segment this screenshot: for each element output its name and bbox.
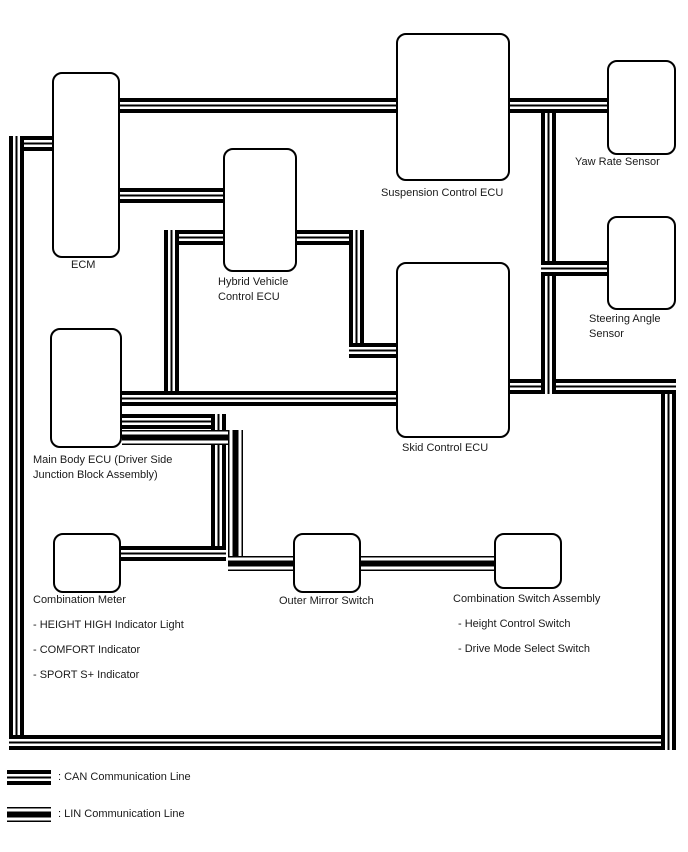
can-line-hybrid-down-right	[349, 230, 364, 358]
node-mainbody-label-line2: Junction Block Assembly)	[33, 468, 172, 483]
legend-lin-label: : LIN Communication Line	[58, 807, 185, 822]
node-hybrid-vehicle-control-ecu	[223, 148, 297, 272]
node-skid-label: Skid Control ECU	[402, 441, 488, 456]
meter-indicator-item: - SPORT S+ Indicator	[33, 668, 139, 683]
node-steering-label-line1: Steering Angle	[589, 312, 661, 327]
can-line-ecm-hybrid	[120, 188, 223, 203]
node-combswitch-label: Combination Switch Assembly	[453, 592, 600, 607]
lin-line-to-mirror-switch	[228, 556, 293, 571]
node-steering-angle-sensor	[607, 216, 676, 310]
node-skid-control-ecu	[396, 262, 510, 438]
can-line-ecm-suspension-yaw	[120, 98, 607, 113]
legend-can-label: : CAN Communication Line	[58, 770, 191, 785]
can-line-loop-left	[9, 136, 24, 750]
node-combination-switch-assembly	[494, 533, 562, 589]
can-line-to-meter	[121, 546, 226, 561]
meter-indicator-item: - COMFORT Indicator	[33, 643, 140, 658]
legend-lin-swatch	[7, 807, 51, 822]
node-ecm-label: ECM	[71, 258, 95, 273]
combswitch-item: - Drive Mode Select Switch	[458, 642, 590, 657]
node-yaw-label: Yaw Rate Sensor	[575, 155, 660, 170]
node-suspension-label: Suspension Control ECU	[381, 186, 503, 201]
node-mainbody-label-line1: Main Body ECU (Driver Side	[33, 453, 172, 468]
node-hybrid-label-line2: Control ECU	[218, 290, 288, 305]
node-meter-label: Combination Meter	[33, 593, 126, 608]
node-hybrid-label-line1: Hybrid Vehicle	[218, 275, 288, 290]
can-line-loop-right	[661, 379, 676, 750]
lin-line-mirror-combswitch	[361, 556, 494, 571]
node-mirror-label: Outer Mirror Switch	[279, 594, 374, 609]
can-line-skid-to-right-trunk	[510, 379, 676, 394]
node-hybrid-label: Hybrid Vehicle Control ECU	[218, 275, 288, 305]
node-main-body-ecu	[50, 328, 122, 448]
can-line-to-skid-left	[349, 343, 396, 358]
can-line-loop-bottom	[9, 735, 676, 750]
node-suspension-control-ecu	[396, 33, 510, 181]
can-line-steering-stub	[541, 261, 607, 276]
lin-line-mainbody-v	[228, 430, 243, 571]
node-steering-label-line2: Sensor	[589, 327, 661, 342]
node-ecm	[52, 72, 120, 258]
lin-line-mainbody-h	[122, 430, 243, 445]
node-combination-meter	[53, 533, 121, 593]
can-line-mainbody-skid	[122, 391, 396, 406]
node-mainbody-label: Main Body ECU (Driver Side Junction Bloc…	[33, 453, 172, 483]
meter-indicator-item: - HEIGHT HIGH Indicator Light	[33, 618, 184, 633]
node-outer-mirror-switch	[293, 533, 361, 593]
node-steering-label: Steering Angle Sensor	[589, 312, 661, 342]
node-yaw-rate-sensor	[607, 60, 676, 155]
can-line-right-branch	[541, 100, 556, 394]
can-line-hybrid-down-left	[164, 230, 179, 406]
diagram-canvas: ECM Hybrid Vehicle Control ECU Suspensio…	[0, 0, 688, 852]
legend-can-swatch	[7, 770, 51, 785]
combswitch-item: - Height Control Switch	[458, 617, 571, 632]
